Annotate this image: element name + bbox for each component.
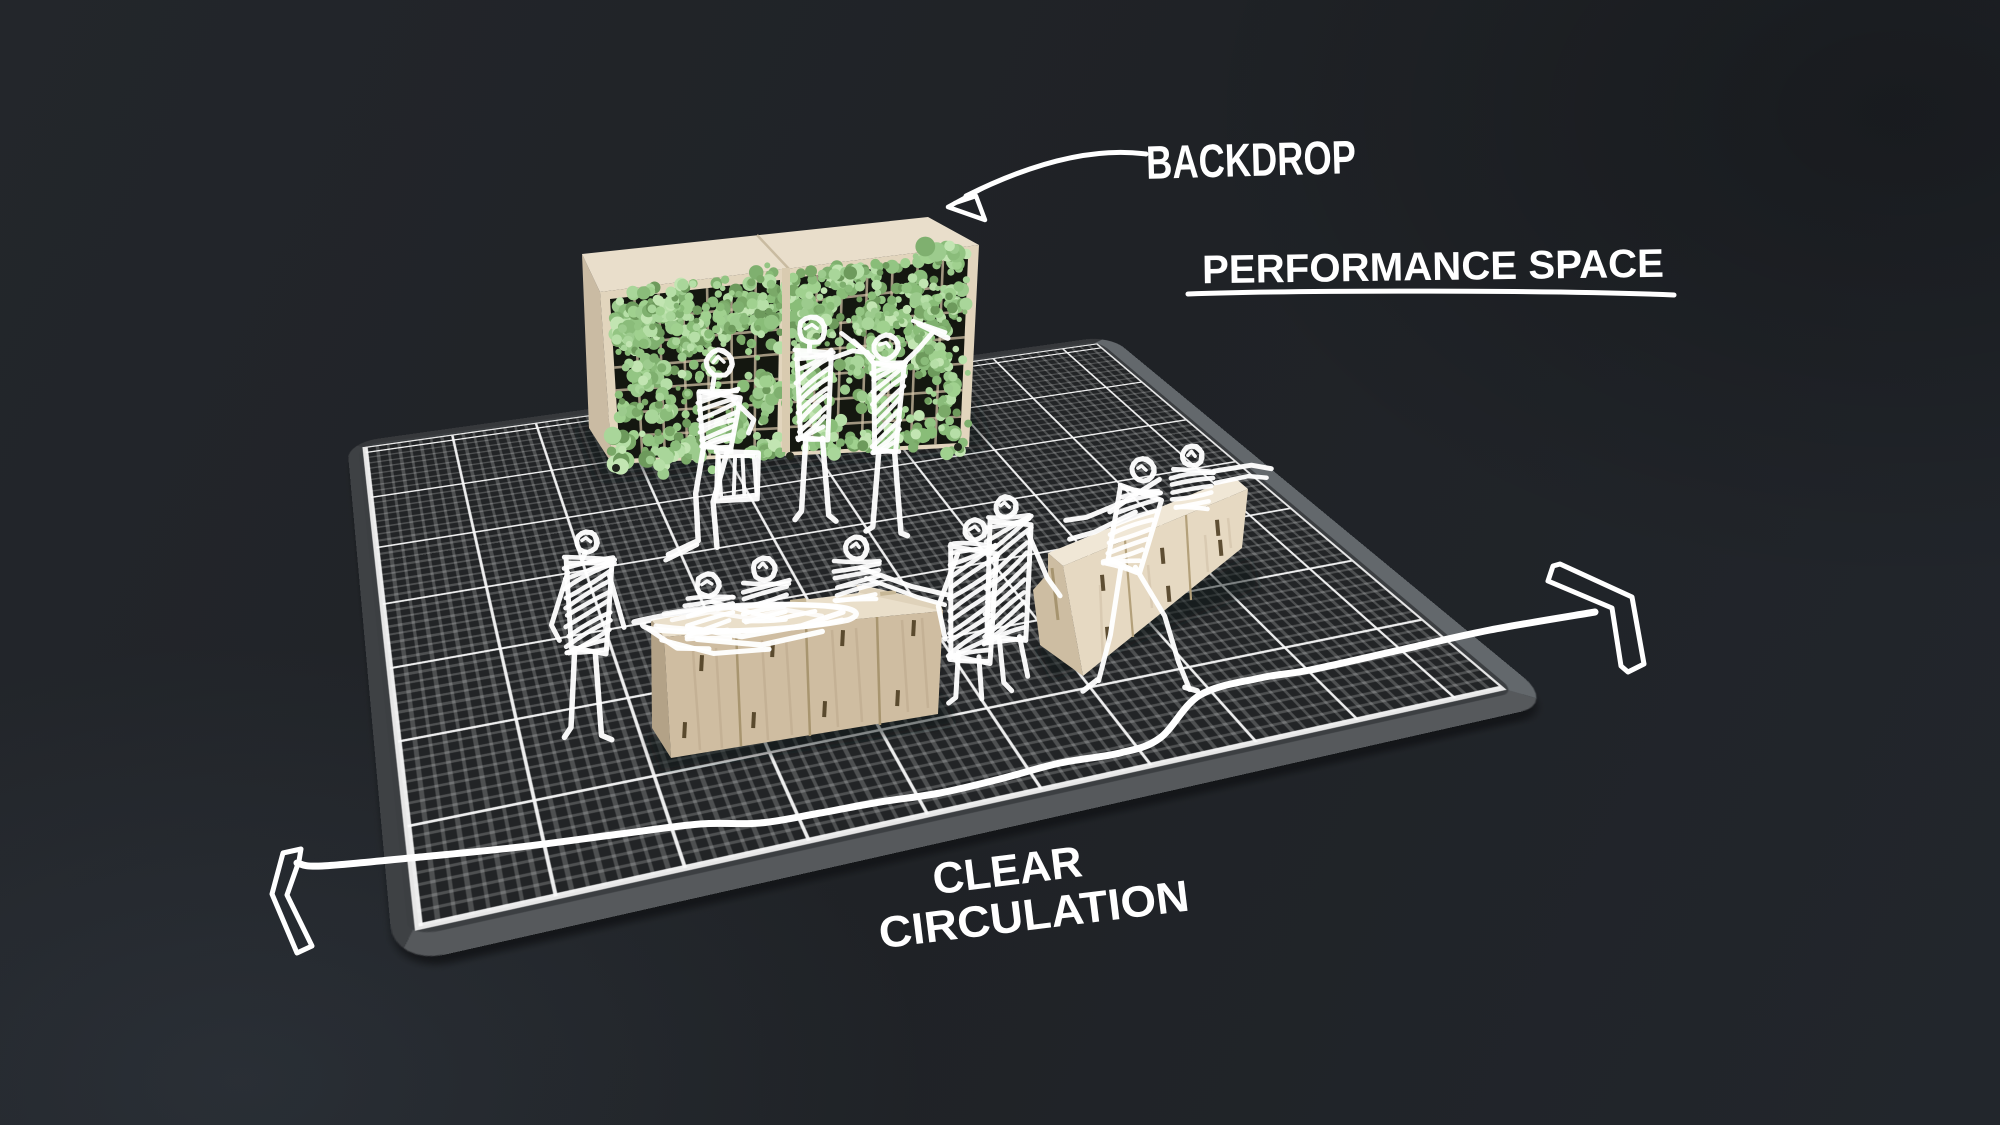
svg-text:PERFORMANCE SPACE: PERFORMANCE SPACE [1202, 242, 1665, 292]
svg-text:BACKDROP: BACKDROP [1145, 130, 1356, 189]
